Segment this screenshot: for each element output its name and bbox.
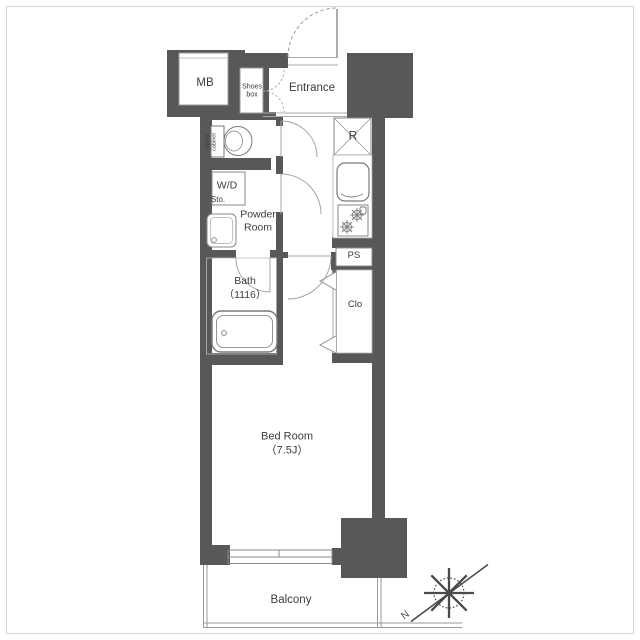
label-balcony: Balcony — [271, 593, 312, 607]
label-bath: Bath （1116） — [224, 274, 267, 302]
label-entrance: Entrance — [289, 81, 335, 95]
label-refrigerator: R — [349, 129, 358, 144]
bedroom-window — [228, 550, 332, 564]
label-washer-dryer: W/D — [217, 179, 237, 192]
powder-room-door — [281, 174, 321, 214]
bedroom-door — [288, 256, 331, 299]
label-bed-room: Bed Room （7.5J） — [261, 430, 313, 459]
label-powder-room: Powder Room — [240, 208, 276, 233]
compass-icon — [411, 565, 488, 622]
entrance-door — [288, 8, 337, 57]
label-shoes-box: Shoes box — [242, 84, 262, 101]
walls — [167, 50, 413, 578]
label-storage: Sto. — [211, 195, 225, 205]
label-mb: MB — [196, 76, 213, 90]
floor-plan-canvas: MB Shoes box Entrance Upper cabinet W/D … — [0, 0, 640, 640]
kitchen-counter — [333, 155, 372, 238]
balcony-rails — [203, 565, 462, 628]
powder-sink-icon — [207, 214, 236, 247]
bathtub-icon — [212, 311, 277, 352]
floor-plan-drawing — [0, 0, 640, 640]
label-pipe-space: PS — [348, 250, 361, 262]
closet — [320, 270, 372, 353]
label-upper-cabinet: Upper cabinet — [204, 133, 217, 151]
toilet-door — [281, 121, 317, 157]
label-closet: Clo — [348, 299, 362, 311]
